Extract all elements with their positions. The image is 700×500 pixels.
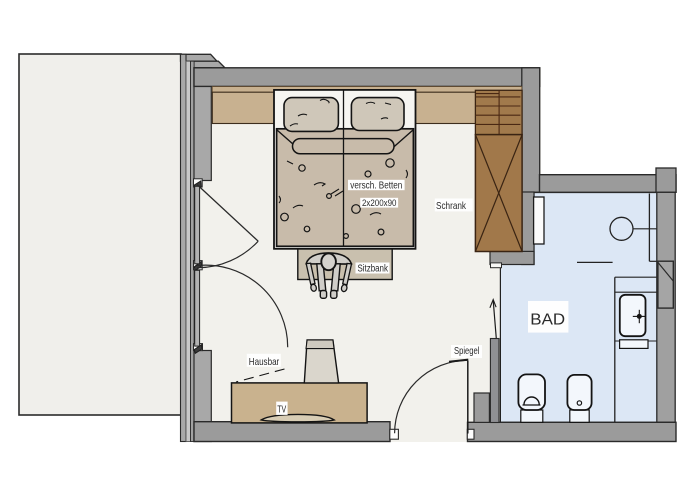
svg-text:Sitzbank: Sitzbank	[357, 264, 388, 275]
svg-text:Schrank: Schrank	[436, 201, 467, 212]
svg-text:versch. Betten: versch. Betten	[350, 181, 402, 192]
svg-text:BAD: BAD	[530, 311, 565, 328]
svg-text:2x200x90: 2x200x90	[362, 198, 397, 209]
svg-text:TV: TV	[277, 404, 286, 415]
svg-text:Spiegel: Spiegel	[454, 346, 479, 357]
svg-text:Hausbar: Hausbar	[249, 357, 280, 368]
